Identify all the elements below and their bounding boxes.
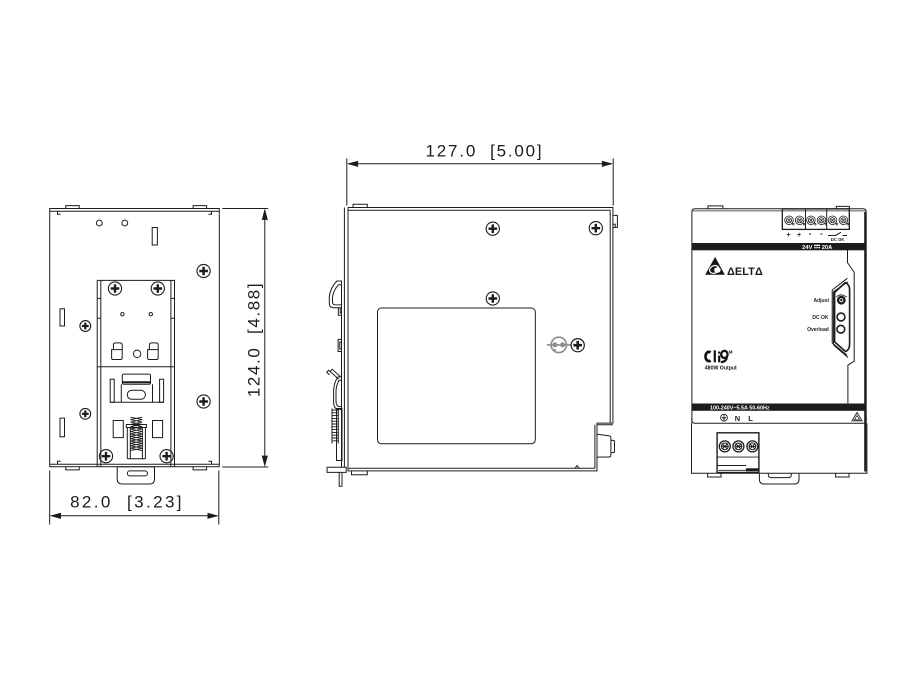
svg-text:DC OK: DC OK — [812, 315, 829, 321]
svg-text:24V: 24V — [802, 245, 812, 251]
svg-text:-: - — [820, 229, 823, 238]
svg-text:82.0 [3.23]: 82.0 [3.23] — [70, 493, 184, 512]
svg-text:DC OK: DC OK — [831, 237, 845, 242]
svg-text:20A: 20A — [822, 245, 833, 251]
svg-text:L: L — [748, 414, 753, 423]
svg-text:M: M — [729, 350, 733, 355]
svg-text:+: + — [786, 232, 790, 239]
svg-text:124.0 [4.88]: 124.0 [4.88] — [245, 282, 264, 397]
svg-text:ΔELTΔ: ΔELTΔ — [727, 266, 763, 278]
svg-text:N: N — [735, 414, 740, 423]
svg-text:Overload: Overload — [807, 327, 829, 333]
svg-text:-: - — [809, 229, 812, 238]
svg-text:+: + — [797, 232, 801, 239]
svg-text:480W Output: 480W Output — [705, 365, 737, 371]
svg-text:100-240V~5.5A 50-60Hz: 100-240V~5.5A 50-60Hz — [710, 405, 770, 411]
svg-text:127.0 [5.00]: 127.0 [5.00] — [426, 142, 544, 161]
svg-text:Adjust: Adjust — [813, 298, 829, 304]
